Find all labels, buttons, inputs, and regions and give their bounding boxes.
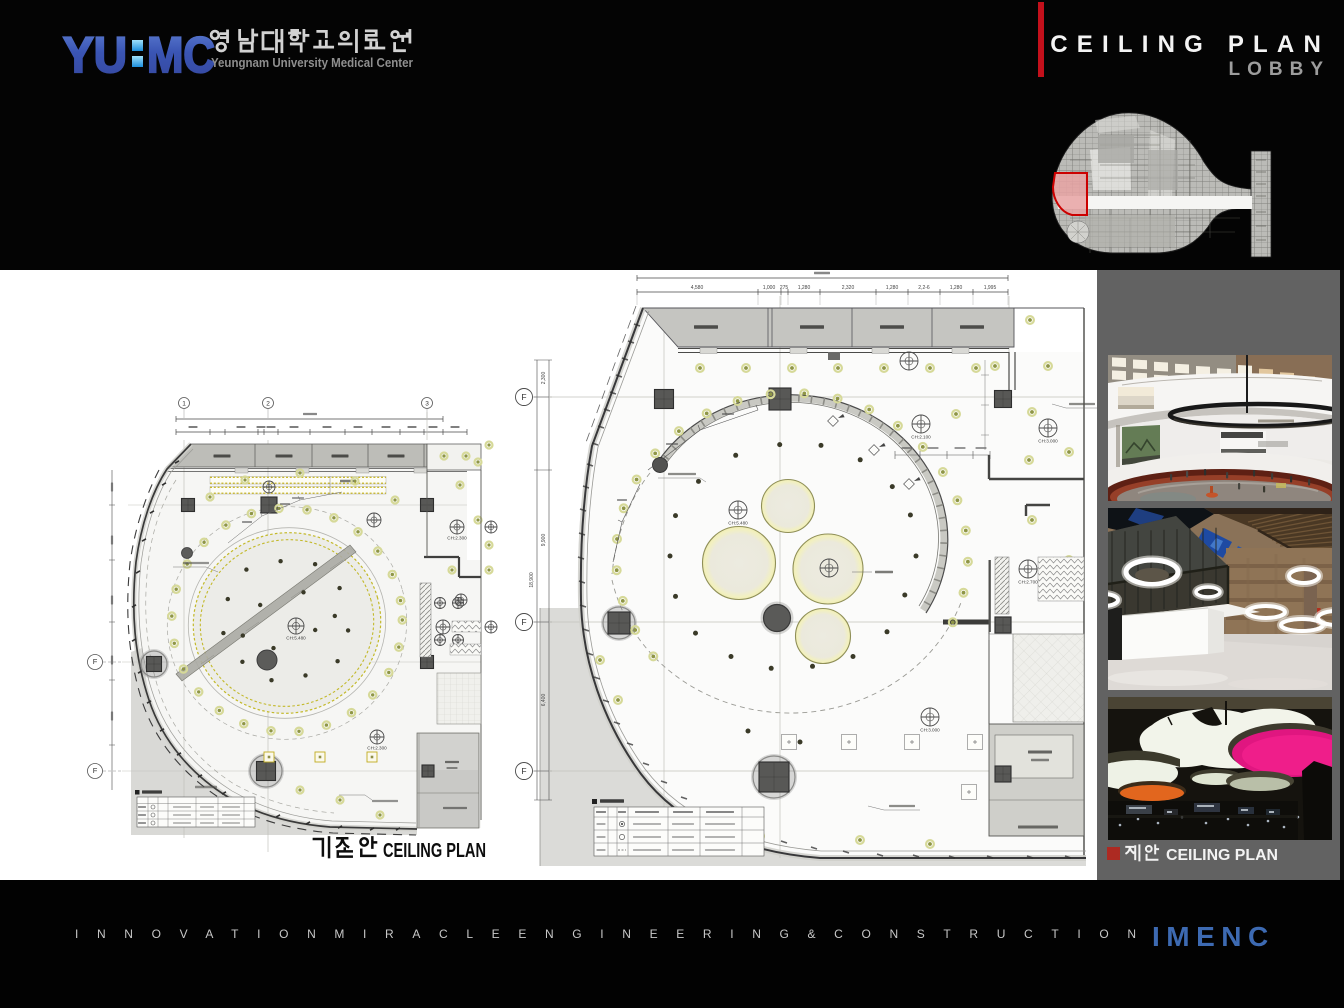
svg-text:CH:2.100: CH:2.100: [911, 435, 931, 440]
svg-text:F: F: [93, 766, 98, 775]
svg-text:1,280: 1,280: [950, 285, 963, 291]
svg-text:CEILING PLAN: CEILING PLAN: [383, 840, 486, 862]
svg-text:IMENC: IMENC: [1152, 921, 1275, 952]
svg-text:1,995: 1,995: [984, 285, 997, 291]
svg-text:CH:2.700: CH:2.700: [1018, 580, 1038, 585]
svg-text:CEILING PLAN: CEILING PLAN: [1166, 847, 1278, 864]
svg-text:CH:3.000: CH:3.000: [920, 728, 940, 733]
svg-text:F: F: [93, 657, 98, 666]
svg-text:1,280: 1,280: [798, 285, 811, 291]
svg-text:CH:5.480: CH:5.480: [286, 636, 306, 641]
svg-text:3: 3: [425, 401, 429, 408]
svg-text:1: 1: [182, 401, 186, 408]
svg-text:2,2-6: 2,2-6: [918, 285, 930, 291]
svg-text:275: 275: [780, 285, 789, 291]
svg-text:F: F: [521, 392, 526, 402]
svg-text:F: F: [521, 766, 526, 776]
svg-text:2: 2: [266, 401, 270, 408]
svg-text:4,580: 4,580: [691, 285, 704, 291]
svg-text:6,400: 6,400: [541, 694, 547, 707]
svg-text:9,900: 9,900: [541, 534, 547, 547]
svg-text:1,280: 1,280: [886, 285, 899, 291]
svg-text:2,300: 2,300: [541, 372, 547, 385]
svg-text:2,320: 2,320: [842, 285, 855, 291]
svg-text:18,900: 18,900: [529, 572, 535, 588]
svg-text:CH:2.300: CH:2.300: [447, 536, 467, 541]
svg-text:CH:2.300: CH:2.300: [367, 746, 387, 751]
svg-text:CH:3.000: CH:3.000: [1038, 439, 1058, 444]
svg-text:CH:5.480: CH:5.480: [728, 521, 748, 526]
svg-text:F: F: [521, 617, 526, 627]
svg-text:1,000: 1,000: [763, 285, 776, 291]
svg-text:INNOVATIONMIRACLEENGINEERING&C: INNOVATIONMIRACLEENGINEERING&CONSTRUCTIO…: [75, 927, 1151, 941]
